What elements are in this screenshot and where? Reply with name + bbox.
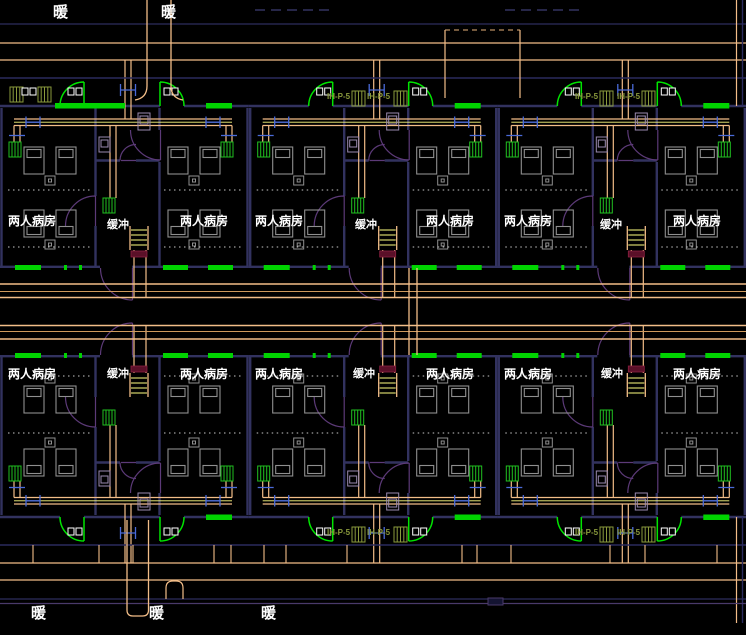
left-equipment-group [10, 87, 51, 102]
cad-floor-plan-canvas: 暖暖暖暖暖两人病房两人病房两人病房两人病房两人病房两人病房缓冲缓冲缓冲两人病房两… [0, 0, 746, 635]
corridor-crossing-riser [409, 268, 417, 355]
top-wing [0, 0, 746, 300]
bottom-risers [0, 520, 746, 616]
bottom-wing [0, 323, 746, 623]
floor-plan-drawing [0, 0, 746, 635]
equipment-hatch-boxes [352, 91, 655, 542]
